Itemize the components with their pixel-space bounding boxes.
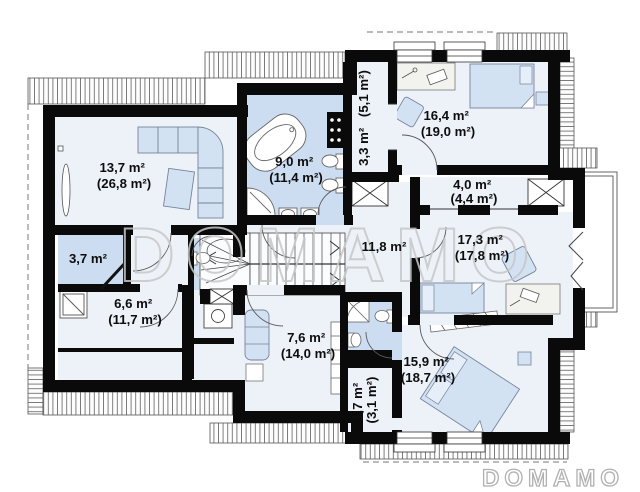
chimney-icon (327, 112, 344, 148)
room-label-bedroom164: 16,4 m² (19,0 m²) (421, 108, 475, 139)
room-total-label: (11,4 m²) (269, 170, 323, 185)
balcony-door-opening (573, 228, 585, 288)
room-label-corridor33: 3,3 m² (5,1 m²) (356, 70, 371, 166)
room-total-label: (14,0 m²) (281, 346, 335, 361)
room-area-label: 15,9 m² (403, 354, 449, 369)
room-area-label: 17,3 m² (457, 232, 503, 247)
room-label-wardrobe40: 4,0 m² (4,4 m²) (451, 177, 498, 206)
nightstand-icon (536, 92, 549, 105)
room-total-label: (26,8 m²) (97, 176, 151, 191)
room-label-storage37: 3,7 m² (69, 251, 108, 266)
room-total-label: (5,1 m²) (356, 70, 371, 117)
bed-single-icon-bedroom164 (470, 64, 534, 108)
room-area-label: 9,0 m² (275, 154, 314, 169)
room-label-living: 13,7 m² (26,8 m²) (97, 160, 151, 191)
desk-icon-bedroom164 (397, 63, 455, 90)
room-label-room76: 7,6 m² (14,0 m²) (281, 330, 335, 361)
room-total-label: (4,4 m²) (451, 191, 498, 206)
shower-icon-smallbath (347, 300, 369, 322)
room-total-label: (11,7 m²) (108, 312, 162, 327)
room-label-room66: 6,6 m² (11,7 m²) (108, 296, 162, 327)
room-total-label: (3,1 m²) (364, 377, 379, 424)
room-area-label: 11,8 m² (362, 239, 407, 254)
room-label-hall118: 11,8 m² (362, 239, 407, 254)
room-label-bedroom159: 15,9 m² (18,7 m²) (401, 354, 455, 385)
room-area-label: 3,7 m² (69, 251, 108, 266)
room-area-label: 4,0 m² (453, 177, 492, 192)
side-table-icon (246, 364, 263, 381)
room-label-bathroom: 9,0 m² (11,4 m²) (269, 154, 323, 185)
floor-plan-svg: DOMAMO 13,7 m² (26,8 m²) 9,0 m² (11,4 m²… (0, 0, 640, 492)
coffee-table-icon (163, 168, 194, 209)
nightstand-icon-bedroom159 (518, 352, 531, 365)
room-total-label: (17,8 m²) (455, 248, 509, 263)
room-area-label: 3,3 m² (356, 127, 371, 166)
floor-plan-page: DOMAMO 13,7 m² (26,8 m²) 9,0 m² (11,4 m²… (0, 0, 640, 492)
room-total-label: (18,7 m²) (401, 370, 455, 385)
logo-text: DOMAMO (482, 465, 624, 492)
room-area-label: 1,7 m² (350, 382, 365, 421)
room-area-label: 13,7 m² (99, 160, 145, 175)
shower-icon-room66 (60, 291, 87, 318)
shaft-circle-icon (212, 310, 225, 323)
room-label-room173: 17,3 m² (17,8 m²) (455, 232, 509, 263)
room-area-label: 7,6 m² (287, 330, 326, 345)
wardrobe-x-icon-left (352, 180, 388, 206)
room-label-room17: 1,7 m² (3,1 m²) (350, 377, 379, 424)
sink-icon-smallbath (348, 333, 361, 347)
room-total-label: (19,0 m²) (421, 124, 475, 139)
room-area-label: 16,4 m² (423, 108, 469, 123)
wardrobe-x-icon-right (528, 179, 564, 206)
sofa-icon-room76 (245, 310, 269, 360)
room-area-label: 6,6 m² (114, 296, 153, 311)
